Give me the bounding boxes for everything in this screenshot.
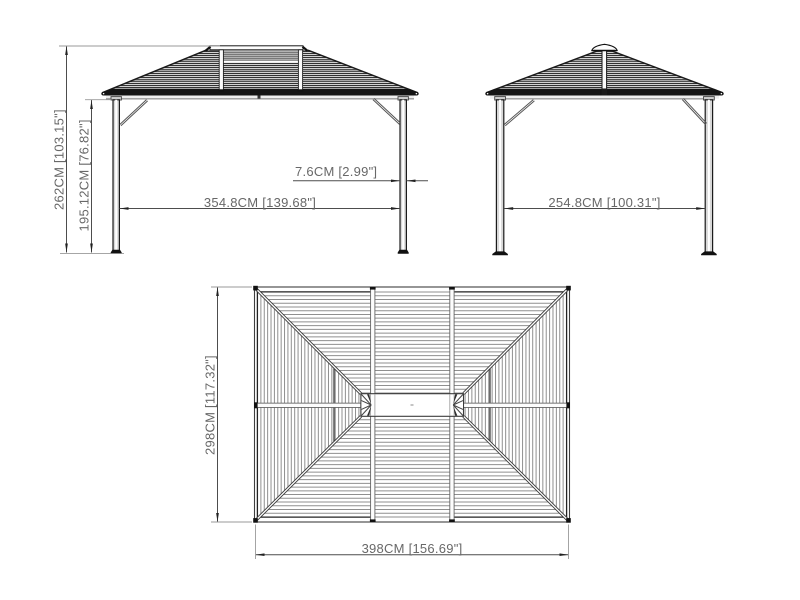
- svg-text:262CM [103.15"]: 262CM [103.15"]: [52, 109, 67, 210]
- svg-text:398CM [156.69"]: 398CM [156.69"]: [362, 541, 463, 556]
- svg-text:7.6CM [2.99"]: 7.6CM [2.99"]: [295, 164, 377, 179]
- svg-text:298CM [117.32"]: 298CM [117.32"]: [203, 355, 218, 455]
- svg-text:254.8CM [100.31"]: 254.8CM [100.31"]: [548, 195, 660, 210]
- svg-text:354.8CM [139.68"]: 354.8CM [139.68"]: [204, 195, 316, 210]
- svg-text:195.12CM [76.82"]: 195.12CM [76.82"]: [77, 119, 92, 231]
